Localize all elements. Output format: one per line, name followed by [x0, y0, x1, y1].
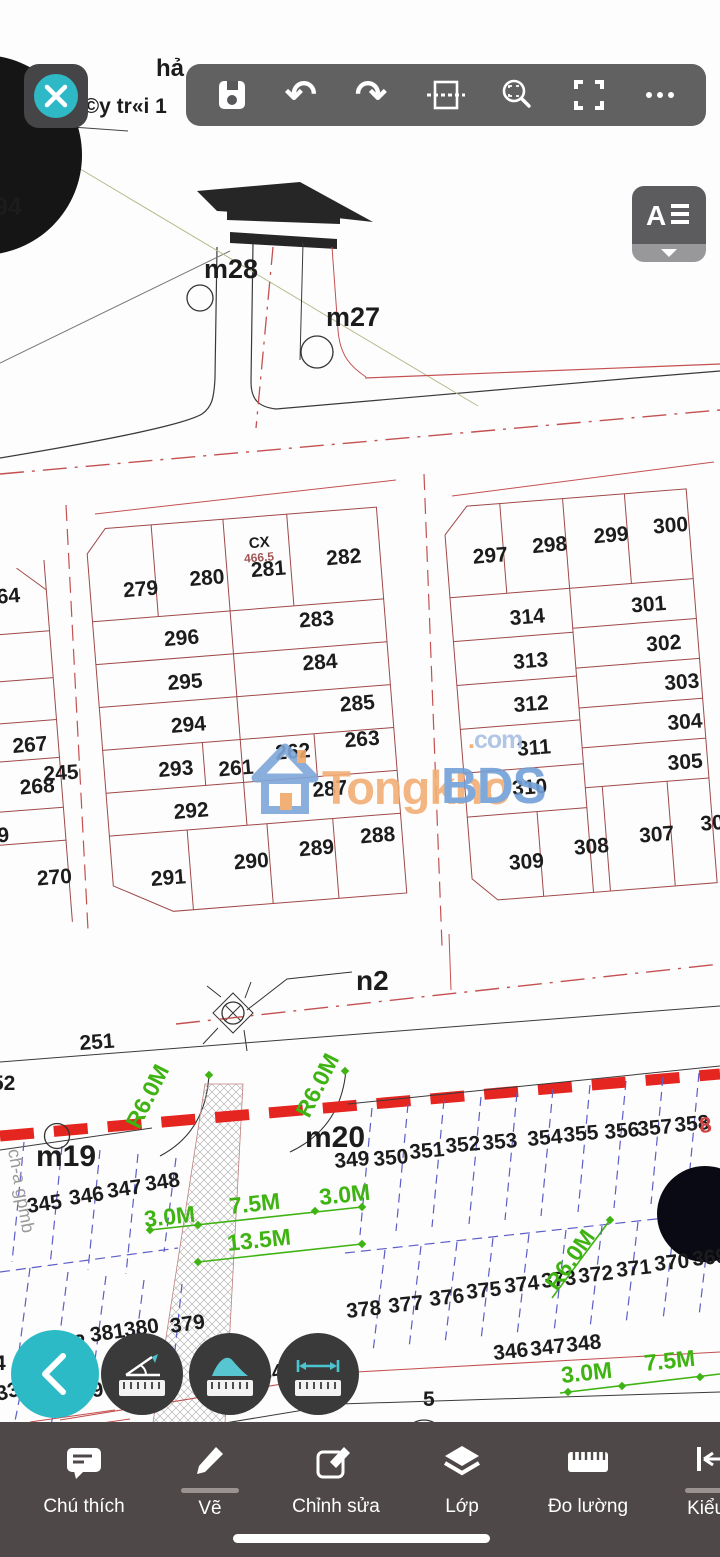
svg-text:307: 307 — [638, 822, 675, 848]
svg-text:m28: m28 — [204, 254, 258, 284]
text-style-button[interactable]: A — [632, 186, 706, 262]
svg-text:294: 294 — [170, 712, 207, 738]
undo-button[interactable]: ↶ — [281, 73, 325, 117]
distance-measure-icon — [288, 1345, 348, 1403]
svg-text:291: 291 — [150, 865, 187, 891]
back-button[interactable] — [11, 1330, 99, 1418]
svg-text:310: 310 — [511, 775, 548, 801]
svg-text:270: 270 — [36, 865, 73, 891]
svg-text:300: 300 — [652, 513, 689, 539]
svg-text:301: 301 — [630, 592, 667, 618]
svg-text:351: 351 — [408, 1138, 445, 1164]
svg-text:353: 353 — [481, 1129, 518, 1155]
svg-text:282: 282 — [325, 545, 362, 571]
svg-text:3.0M: 3.0M — [318, 1179, 372, 1210]
layers-icon — [442, 1444, 482, 1486]
svg-text:352: 352 — [444, 1132, 481, 1158]
svg-text:7.5M: 7.5M — [228, 1188, 282, 1219]
svg-text:13.5M: 13.5M — [226, 1223, 292, 1256]
svg-text:370: 370 — [653, 1249, 690, 1276]
distance-measure-button[interactable] — [277, 1333, 359, 1415]
svg-text:357: 357 — [636, 1115, 673, 1141]
svg-text:305: 305 — [667, 749, 704, 775]
tool-dimension-style-active-bar — [685, 1488, 720, 1493]
svg-text:94: 94 — [0, 193, 22, 221]
fullscreen-button[interactable] — [567, 73, 611, 117]
edit-icon — [315, 1444, 357, 1486]
svg-text:375: 375 — [465, 1277, 503, 1304]
angle-measure-icon — [112, 1345, 172, 1403]
svg-text:296: 296 — [163, 625, 200, 651]
svg-text:377: 377 — [387, 1291, 424, 1318]
svg-text:309: 309 — [508, 849, 545, 875]
svg-text:283: 283 — [298, 607, 335, 633]
dimension-style-icon — [694, 1444, 720, 1486]
cad-drawing-canvas[interactable]: 279280281282CX466.5296283295284294285293… — [0, 0, 720, 1557]
tool-measure-label: Đo lường — [548, 1496, 628, 1518]
svg-text:52: 52 — [0, 1072, 15, 1095]
svg-text:371: 371 — [615, 1255, 653, 1282]
svg-text:64: 64 — [0, 584, 21, 609]
text-style-list-icon: A — [645, 198, 693, 232]
block-right: 2972982993003143013133023123033113043103… — [443, 487, 720, 902]
svg-text:295: 295 — [167, 669, 204, 695]
save-icon — [215, 78, 249, 112]
svg-text:↶: ↶ — [284, 75, 317, 115]
svg-text:293: 293 — [158, 756, 195, 782]
area-measure-icon — [200, 1345, 260, 1403]
tool-measure[interactable]: Đo lường — [525, 1422, 651, 1557]
svg-text:302: 302 — [645, 631, 682, 657]
block-left: 642672689270 — [0, 560, 75, 932]
tool-edit-label: Chỉnh sửa — [292, 1496, 380, 1518]
svg-text:355: 355 — [562, 1121, 599, 1147]
svg-text:299: 299 — [593, 523, 630, 549]
svg-text:m27: m27 — [326, 302, 380, 332]
tool-layers-label: Lớp — [445, 1496, 479, 1518]
svg-text:279: 279 — [122, 577, 159, 603]
top-toolbar: ↶ ↷ — [186, 64, 706, 126]
svg-text:313: 313 — [512, 648, 549, 674]
svg-text:ch-a gpmb: ch-a gpmb — [4, 1147, 38, 1234]
svg-text:245: 245 — [43, 761, 80, 786]
undo-icon: ↶ — [283, 75, 323, 115]
svg-text:292: 292 — [173, 798, 210, 824]
svg-text:304: 304 — [667, 709, 704, 735]
svg-text:374: 374 — [503, 1271, 541, 1298]
tool-annotate-label: Chú thích — [43, 1496, 124, 1518]
home-indicator[interactable] — [233, 1534, 490, 1543]
chevron-left-icon — [37, 1352, 73, 1396]
redo-button[interactable]: ↷ — [353, 73, 397, 117]
svg-text:251: 251 — [79, 1030, 116, 1055]
svg-text:348: 348 — [143, 1168, 181, 1196]
svg-text:354: 354 — [526, 1125, 563, 1151]
close-icon — [34, 74, 78, 118]
svg-text:347: 347 — [105, 1175, 143, 1203]
svg-text:348: 348 — [565, 1330, 603, 1357]
tool-dimension-style[interactable]: Kiểu n — [651, 1422, 720, 1557]
zoom-select-button[interactable] — [495, 73, 539, 117]
tool-annotate[interactable]: Chú thích — [21, 1422, 147, 1557]
svg-text:378: 378 — [345, 1296, 383, 1323]
tool-dimension-style-label: Kiểu n — [687, 1498, 720, 1520]
svg-text:285: 285 — [339, 691, 376, 717]
block-middle: 279280281282CX466.5296283295284294285293… — [85, 507, 406, 916]
angle-measure-button[interactable] — [101, 1333, 183, 1415]
save-button[interactable] — [210, 73, 254, 117]
svg-text:m19: m19 — [36, 1140, 96, 1173]
svg-text:262: 262 — [275, 739, 312, 765]
svg-text:280: 280 — [189, 565, 226, 591]
svg-text:298: 298 — [531, 532, 568, 558]
svg-text:289: 289 — [298, 836, 335, 862]
chevron-down-icon — [660, 248, 678, 258]
tool-draw-label: Vẽ — [198, 1498, 221, 1520]
svg-text:287: 287 — [312, 776, 349, 802]
svg-text:303: 303 — [663, 669, 700, 695]
more-button[interactable] — [638, 73, 682, 117]
svg-text:346: 346 — [67, 1182, 105, 1210]
svg-text:263: 263 — [344, 727, 381, 753]
close-drawing-button[interactable] — [24, 64, 88, 128]
pencil-icon — [190, 1444, 230, 1486]
svg-text:350: 350 — [372, 1145, 409, 1171]
section-break-icon — [427, 78, 465, 112]
svg-text:379: 379 — [168, 1310, 206, 1338]
svg-text:314: 314 — [509, 604, 546, 630]
svg-text:7.5M: 7.5M — [643, 1345, 697, 1376]
ruler-icon — [566, 1444, 610, 1486]
svg-text:306: 306 — [700, 810, 720, 836]
svg-text:372: 372 — [577, 1261, 614, 1288]
svg-text:3.0M: 3.0M — [560, 1357, 614, 1388]
svg-text:347: 347 — [529, 1334, 566, 1361]
svg-text:290: 290 — [233, 849, 270, 875]
svg-text:297: 297 — [472, 543, 509, 569]
svg-text:9: 9 — [0, 824, 10, 848]
area-measure-button[interactable] — [189, 1333, 271, 1415]
svg-text:3.0M: 3.0M — [143, 1201, 197, 1232]
svg-text:312: 312 — [513, 691, 550, 717]
svg-text:261: 261 — [218, 756, 255, 782]
svg-text:311: 311 — [516, 735, 552, 761]
zoom-select-icon — [499, 77, 535, 113]
svg-text:288: 288 — [359, 823, 396, 849]
svg-text:5: 5 — [423, 1388, 435, 1411]
svg-text:356: 356 — [603, 1118, 640, 1144]
more-icon — [642, 78, 678, 112]
svg-text:267: 267 — [12, 732, 49, 758]
text-style-expander[interactable] — [632, 244, 706, 262]
svg-text:308: 308 — [573, 834, 610, 860]
tool-draw-active-bar — [181, 1488, 239, 1493]
svg-text:376: 376 — [428, 1284, 465, 1311]
svg-text:↷: ↷ — [355, 75, 387, 115]
svg-text:466.5: 466.5 — [243, 549, 274, 565]
svg-text:4: 4 — [0, 1352, 6, 1375]
svg-text:369: 369 — [691, 1244, 720, 1271]
svg-text:349: 349 — [333, 1147, 370, 1173]
svg-text:346: 346 — [492, 1338, 529, 1365]
comment-icon — [64, 1444, 104, 1486]
svg-text:hả: hả — [156, 55, 185, 82]
redo-icon: ↷ — [355, 75, 395, 115]
svg-text:8: 8 — [698, 1112, 712, 1138]
svg-text:284: 284 — [302, 650, 339, 676]
fullscreen-icon — [572, 78, 606, 112]
svg-text:n2: n2 — [356, 965, 389, 996]
text-style-letter: A — [646, 200, 666, 231]
section-break-button[interactable] — [424, 73, 468, 117]
